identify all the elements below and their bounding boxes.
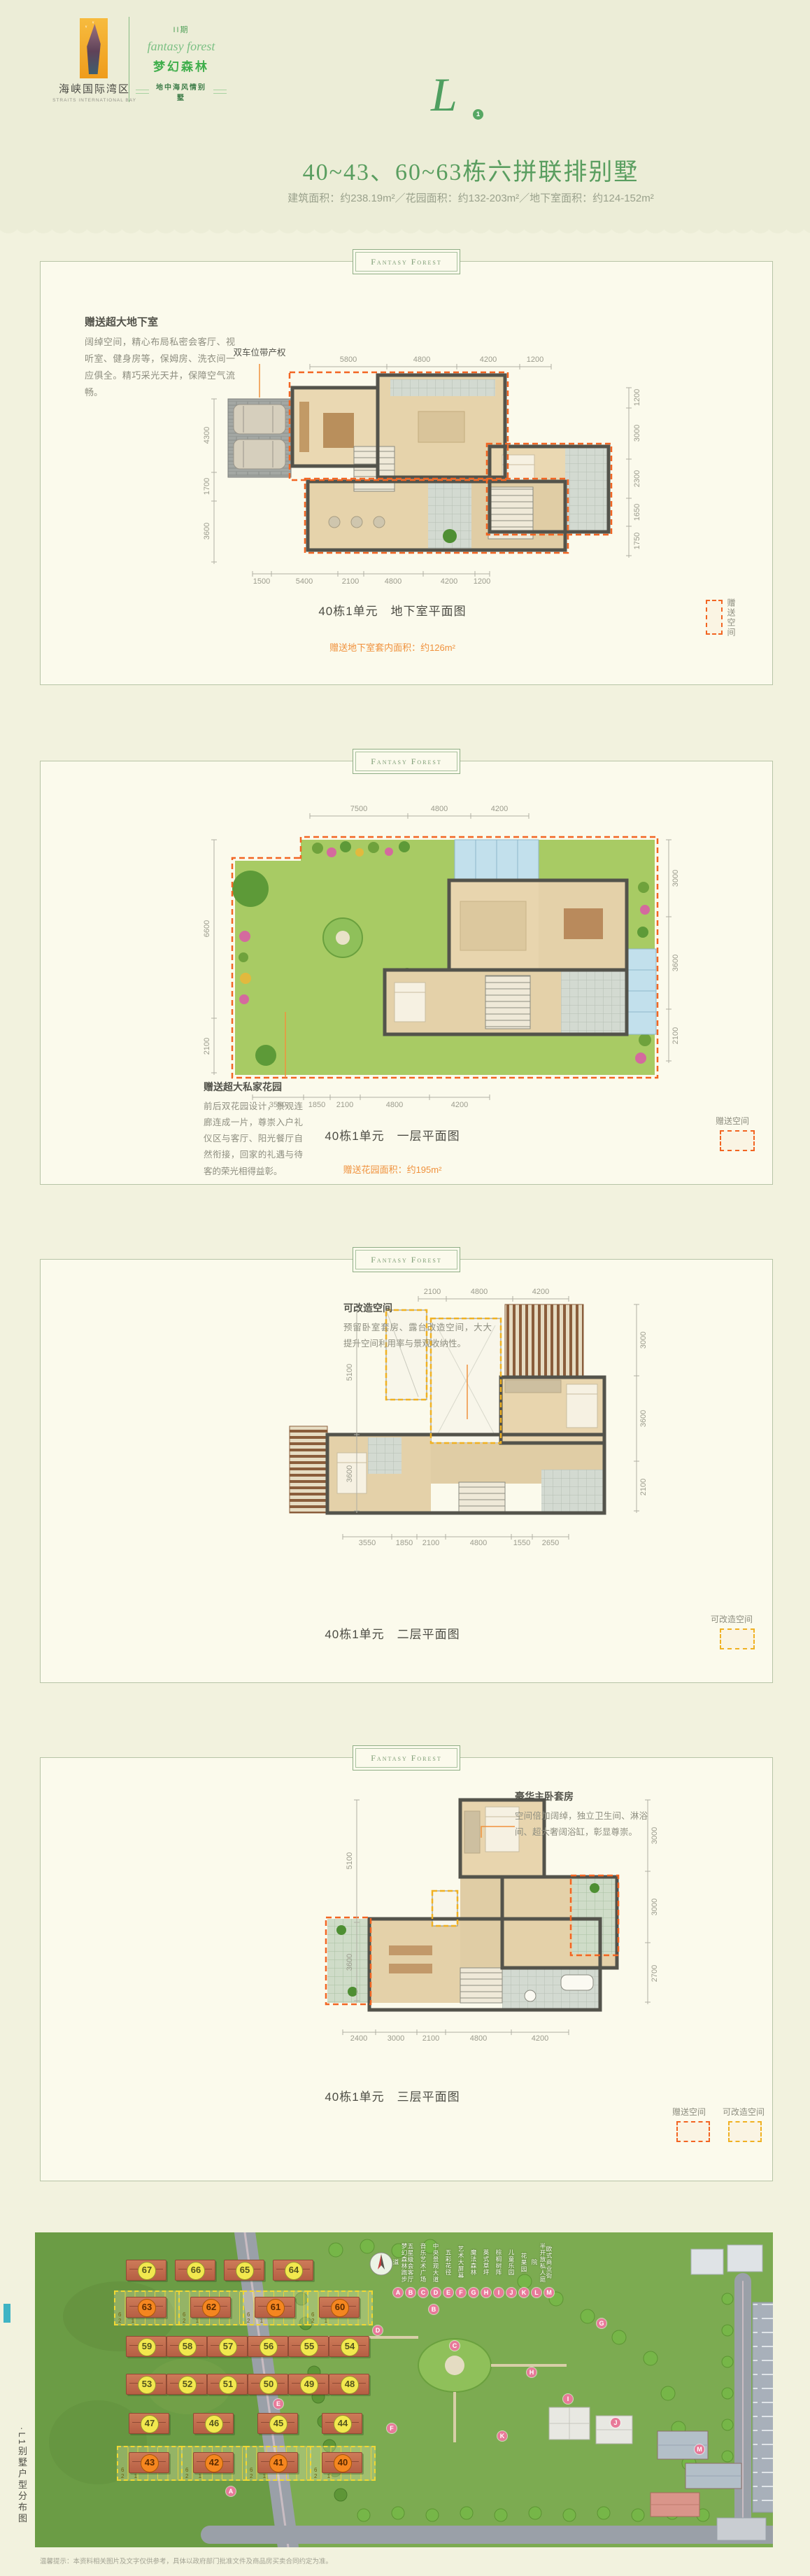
building-number: 60 xyxy=(331,2299,349,2317)
building: 51 xyxy=(207,2374,248,2395)
building: 46 xyxy=(193,2413,234,2434)
map-marker: E xyxy=(273,2399,283,2409)
building-number: 58 xyxy=(178,2338,197,2356)
building-number: 57 xyxy=(219,2338,237,2356)
dim: 2650 xyxy=(542,1539,559,1547)
legend-convertible-swatch xyxy=(728,2121,762,2142)
side-marker xyxy=(3,2304,10,2323)
legend-label: 英式草坪 xyxy=(482,2239,490,2286)
scallop-edge xyxy=(0,227,810,237)
building-number: 45 xyxy=(269,2415,287,2433)
building: 55 xyxy=(288,2336,329,2357)
tagline-dash xyxy=(213,90,227,94)
building-number: 59 xyxy=(138,2338,156,2356)
legend-gift-label: 赠送空间 xyxy=(716,1115,749,1127)
panel-floor3: Fantasy Forest xyxy=(40,1757,773,2181)
building-number: 41 xyxy=(269,2454,287,2472)
dim: 2100 xyxy=(336,1101,353,1109)
map-marker: M xyxy=(695,2444,704,2454)
map-marker: I xyxy=(563,2394,573,2404)
dim: 4200 xyxy=(491,805,508,813)
building-highlight: 42 xyxy=(193,2452,234,2473)
disclaimer: 温馨提示：本资料相关图片及文字仅供参考，具体以政府部门批准文件及商品房买卖合同约… xyxy=(40,2556,332,2566)
legend-letter: K xyxy=(519,2288,529,2297)
garage xyxy=(228,399,291,477)
dim: 4200 xyxy=(441,577,457,586)
building-number: 63 xyxy=(138,2299,156,2317)
dim: 4200 xyxy=(480,356,497,364)
legend-letter: M xyxy=(544,2288,554,2297)
building: 48 xyxy=(329,2374,369,2395)
header-subbrand-block: II期 fantasy forest 梦幻森林 地中海风情别墅 xyxy=(136,24,227,102)
legend-letter: I xyxy=(494,2288,504,2297)
map-marker: B xyxy=(429,2304,439,2314)
dim: 5100 xyxy=(346,1364,354,1381)
building-number: 48 xyxy=(341,2376,359,2394)
dim: 6600 xyxy=(203,920,211,937)
unit-letter: L xyxy=(431,68,457,121)
dim: 2400 xyxy=(350,2034,367,2043)
building-number: 43 xyxy=(141,2454,159,2472)
floor3-plan: 5100 3600 3000 3000 2700 2400 3000 2100 … xyxy=(41,1758,772,2181)
dim: 4300 xyxy=(203,427,211,444)
map-marker: J xyxy=(611,2418,620,2428)
legend-label: 欧式商业街 xyxy=(545,2239,553,2286)
building: 47 xyxy=(129,2413,169,2434)
legend-gift-swatch xyxy=(720,1130,755,1151)
script-title: fantasy forest xyxy=(136,39,227,54)
building-number: 66 xyxy=(187,2262,205,2280)
dim: 3600 xyxy=(203,523,211,540)
building-number: 62 xyxy=(202,2299,220,2317)
legend-label: 魔法森林 xyxy=(469,2239,478,2286)
brochure-page: ᵛ ᵛ 海峡国际湾区 STRAITS INTERNATIONAL BAY II期… xyxy=(0,0,810,2576)
dim: 2100 xyxy=(639,1479,648,1495)
dim: 1500 xyxy=(253,577,270,586)
building-number: 40 xyxy=(334,2454,352,2472)
gift-area-note: 赠送地下室套内面积：约126m² xyxy=(211,640,574,654)
dim: 1850 xyxy=(396,1539,413,1547)
dim: 3600 xyxy=(346,1465,354,1482)
legend-label: 艺术大屏幕 xyxy=(457,2239,465,2286)
building: 64 xyxy=(273,2260,313,2281)
building-number: 51 xyxy=(219,2376,237,2394)
map-marker: C xyxy=(450,2341,460,2351)
building-highlight: 41 xyxy=(257,2452,298,2473)
legend-label: 五彩花径 xyxy=(444,2239,453,2286)
building: 59 xyxy=(126,2336,166,2357)
dim: 4800 xyxy=(470,1539,487,1547)
dim: 3600 xyxy=(639,1410,648,1427)
dim: 4800 xyxy=(431,805,448,813)
dim: 2700 xyxy=(651,1965,659,1982)
dim: 4200 xyxy=(532,2034,548,2043)
legend-letter: J xyxy=(506,2288,516,2297)
building: 57 xyxy=(207,2336,248,2357)
note-block: 豪华主卧套房 空间倍加阔绰，独立卫生间、淋浴间、超大奢阔浴缸，彰显尊崇。 xyxy=(515,1789,648,1840)
dim: 2100 xyxy=(672,1027,680,1044)
dim: 5100 xyxy=(346,1852,354,1869)
subbrand-title: 梦幻森林 xyxy=(136,57,227,74)
dim: 2100 xyxy=(424,1288,441,1296)
note-title: 赠送超大私家花园 xyxy=(204,1080,303,1094)
legend-convertible-label: 可改造空间 xyxy=(711,1613,753,1625)
basement-rooms xyxy=(292,375,609,550)
floor1-plan: 7500 4800 4200 6600 2100 3000 3600 2100 … xyxy=(41,761,772,1184)
building-number: 46 xyxy=(205,2415,223,2433)
bird-icon: ᵛ xyxy=(92,21,94,26)
dim: 1200 xyxy=(527,356,543,364)
building-highlight: 40 xyxy=(322,2452,362,2473)
dim: 1850 xyxy=(308,1101,325,1109)
building-number: 67 xyxy=(138,2262,156,2280)
dim: 3000 xyxy=(388,2034,404,2043)
logo-art-icon: ᵛ ᵛ xyxy=(80,18,108,78)
building-highlight: 61 xyxy=(255,2297,295,2318)
dim: 1200 xyxy=(474,577,490,586)
compass-icon xyxy=(370,2253,392,2275)
legend-label: 棕榈树阵 xyxy=(495,2239,503,2286)
legend-letter: B xyxy=(406,2288,415,2297)
dim: 2100 xyxy=(422,1539,439,1547)
building: 45 xyxy=(257,2413,298,2434)
note-body: 阔绰空间，精心布局私密会客厅、视听室、健身房等，保姆房、洗衣间一应俱全。精巧采光… xyxy=(85,334,235,401)
building-highlight: 43 xyxy=(129,2452,169,2473)
gift-area-note: 赠送花园面积：约195m² xyxy=(211,1162,574,1176)
dim: 3000 xyxy=(651,1899,659,1915)
building-number: 64 xyxy=(285,2262,303,2280)
tagline-row: 地中海风情别墅 xyxy=(136,81,227,102)
note-title: 赠送超大地下室 xyxy=(85,314,235,329)
dim: 3600 xyxy=(346,1954,354,1971)
dim: 1550 xyxy=(513,1539,530,1547)
brand-name-en: STRAITS INTERNATIONAL BAY xyxy=(49,98,140,103)
dim: 4800 xyxy=(385,577,402,586)
legend-label: 音乐艺术广场 xyxy=(419,2239,427,2286)
dim: 2300 xyxy=(633,470,641,487)
building-number: 55 xyxy=(300,2338,318,2356)
dim: 1650 xyxy=(633,504,641,521)
garage-callout: 双车位带产权 xyxy=(218,345,301,358)
plan-caption: 40栋1单元 一层平面图 xyxy=(211,1126,574,1143)
legend-gift-label: 赠送空间 xyxy=(725,598,737,640)
legend-letter: H xyxy=(481,2288,491,2297)
panel-basement: Fantasy Forest xyxy=(40,261,773,685)
building: 58 xyxy=(166,2336,207,2357)
building: 50 xyxy=(248,2374,288,2395)
legend-letter: C xyxy=(418,2288,428,2297)
dim: 3000 xyxy=(651,1827,659,1844)
dim: 7500 xyxy=(350,805,367,813)
dim: 2100 xyxy=(422,2034,439,2043)
dim: 4800 xyxy=(386,1101,403,1109)
legend-gift-label: 赠送空间 xyxy=(672,2106,706,2118)
legend-convertible-swatch xyxy=(720,1628,755,1649)
bird-icon: ᵛ xyxy=(85,25,87,30)
legend-label: 花果园 xyxy=(520,2239,528,2286)
legend-convertible-label: 可改造空间 xyxy=(723,2106,765,2118)
building-number: 49 xyxy=(300,2376,318,2394)
dim: 4800 xyxy=(471,1288,488,1296)
dim: 2100 xyxy=(342,577,359,586)
tagline-dash xyxy=(136,90,149,94)
note-block: 赠送超大地下室 阔绰空间，精心布局私密会客厅、视听室、健身房等，保姆房、洗衣间一… xyxy=(85,314,235,401)
legend-letter: L xyxy=(532,2288,541,2297)
panel-floor2: Fantasy Forest xyxy=(40,1259,773,1683)
dim: 3000 xyxy=(633,425,641,442)
dim: 3550 xyxy=(359,1539,376,1547)
legend-letter: G xyxy=(469,2288,478,2297)
building-number: 50 xyxy=(260,2376,278,2394)
logo-mountain-icon xyxy=(84,24,104,74)
map-marker: F xyxy=(387,2423,397,2433)
sitemap-side-caption: ·L1别墅户型分布图 xyxy=(15,2427,29,2525)
building: 67 xyxy=(126,2260,166,2281)
building-number: 42 xyxy=(205,2454,223,2472)
dim: 2100 xyxy=(203,1038,211,1055)
plan-caption: 40栋1单元 地下室平面图 xyxy=(211,601,574,619)
map-marker: A xyxy=(226,2486,236,2496)
legend-label: 中央景观大道 xyxy=(432,2239,440,2286)
dim: 3600 xyxy=(672,955,680,971)
building-highlight: 60 xyxy=(319,2297,360,2318)
dim: 5400 xyxy=(296,577,313,586)
dim: 5800 xyxy=(340,356,357,364)
building-number: 53 xyxy=(138,2376,156,2394)
page-title: 40~43、60~63栋六拼联排别墅 xyxy=(132,153,810,187)
legend-label: 五星级会客厅 xyxy=(406,2239,415,2286)
dim: 4800 xyxy=(470,2034,487,2043)
dim: 3000 xyxy=(672,870,680,887)
building-number: 65 xyxy=(236,2262,254,2280)
building-number: 44 xyxy=(334,2415,352,2433)
header-divider xyxy=(129,17,129,102)
building: 56 xyxy=(248,2336,288,2357)
header: ᵛ ᵛ 海峡国际湾区 STRAITS INTERNATIONAL BAY II期… xyxy=(0,0,810,227)
note-body: 预留卧室套房、露台改造空间，大大提升空间利用率与景观收纳性。 xyxy=(343,1320,492,1352)
building: 52 xyxy=(166,2374,207,2395)
brand-name: 海峡国际湾区 xyxy=(49,81,140,96)
legend-gift-swatch xyxy=(676,2121,710,2142)
building: 66 xyxy=(175,2260,215,2281)
page-subtitle: 建筑面积：约238.19m²／花园面积：约132-203m²／地下室面积：约12… xyxy=(132,190,810,205)
legend-letter: F xyxy=(456,2288,466,2297)
map-entry-plaza xyxy=(717,2518,766,2540)
building-number: 52 xyxy=(178,2376,197,2394)
building-number: 56 xyxy=(260,2338,278,2356)
building: 49 xyxy=(288,2374,329,2395)
legend-letter: A xyxy=(393,2288,403,2297)
tagline: 地中海风情别墅 xyxy=(152,81,209,102)
dim: 4200 xyxy=(532,1288,549,1296)
building: 54 xyxy=(329,2336,369,2357)
dim: 4800 xyxy=(413,356,430,364)
note-title: 豪华主卧套房 xyxy=(515,1789,648,1803)
legend-label: 儿童乐园 xyxy=(507,2239,516,2286)
map-marker: H xyxy=(527,2367,537,2377)
building: 53 xyxy=(126,2374,166,2395)
map-parking xyxy=(753,2302,773,2512)
building: 44 xyxy=(322,2413,362,2434)
note-title: 可改造空间 xyxy=(343,1301,492,1315)
map-marker: K xyxy=(497,2431,507,2441)
dim: 1200 xyxy=(633,389,641,406)
dim: 3000 xyxy=(639,1332,648,1349)
map-marker: D xyxy=(373,2325,383,2335)
map-marker: G xyxy=(597,2318,606,2328)
dim: 4200 xyxy=(451,1101,468,1109)
plan-caption: 40栋1单元 二层平面图 xyxy=(211,1624,574,1642)
note-body: 空间倍加阔绰，独立卫生间、淋浴间、超大奢阔浴缸，彰显尊崇。 xyxy=(515,1808,648,1840)
building-highlight: 62 xyxy=(190,2297,231,2318)
note-block: 可改造空间 预留卧室套房、露台改造空间，大大提升空间利用率与景观收纳性。 xyxy=(343,1301,492,1352)
legend-gift-swatch xyxy=(706,600,723,635)
dim: 1750 xyxy=(633,533,641,549)
legend-letter: D xyxy=(431,2288,441,2297)
plan-caption: 40栋1单元 三层平面图 xyxy=(211,2087,574,2104)
unit-number-badge: 1 xyxy=(473,109,483,120)
panel-floor1: Fantasy Forest xyxy=(40,761,773,1185)
building-highlight: 63 xyxy=(126,2297,166,2318)
building-number: 61 xyxy=(267,2299,285,2317)
building-number: 54 xyxy=(341,2338,359,2356)
unit-type-mark: L 1 xyxy=(431,70,515,126)
dim: 1700 xyxy=(203,478,211,495)
legend-letter: E xyxy=(443,2288,453,2297)
building: 65 xyxy=(224,2260,264,2281)
building-number: 47 xyxy=(141,2415,159,2433)
phase-label: II期 xyxy=(136,24,227,35)
